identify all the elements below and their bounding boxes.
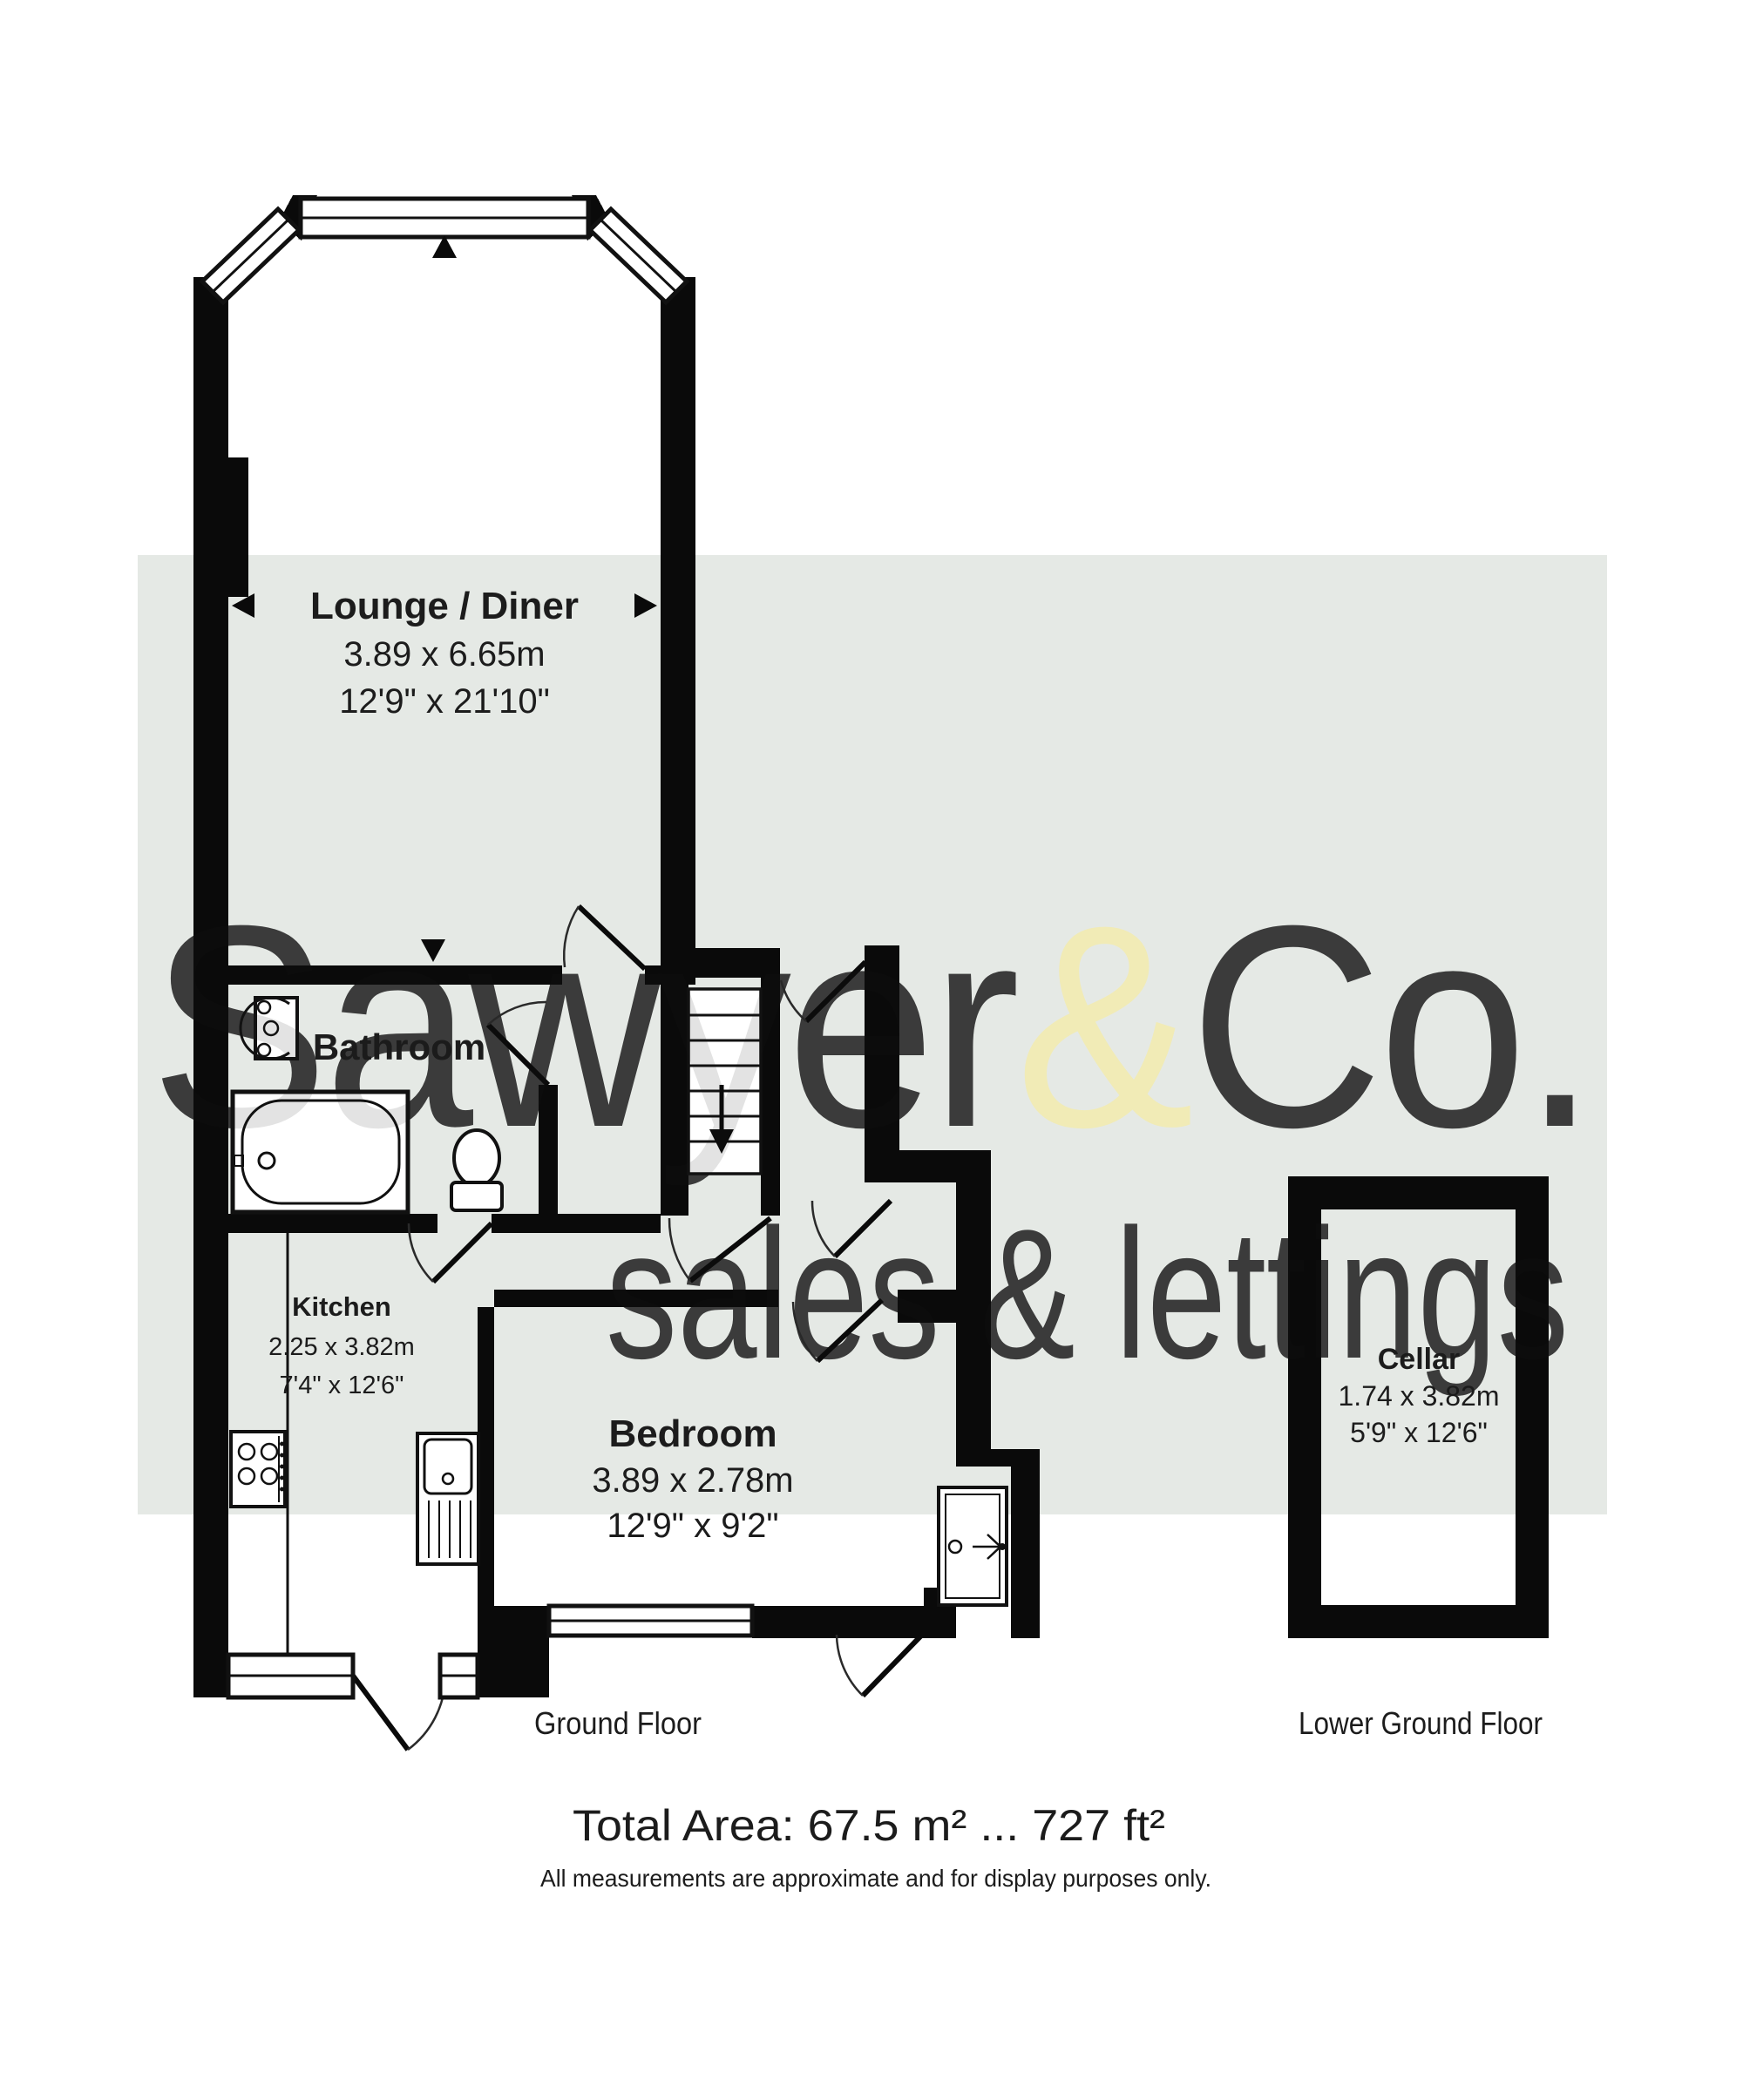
vestibule-rear-door [837, 1633, 924, 1696]
room-dims-cellar-imperial: 5'9" x 12'6" [1350, 1417, 1488, 1448]
footer: Total Area: 67.5 m² ... 727 ft² All meas… [540, 1801, 1211, 1892]
room-dims-kitchen-imperial: 7'4" x 12'6" [280, 1372, 404, 1399]
wall-bathroom-bottom [228, 1214, 437, 1233]
chimney-breast [228, 457, 248, 597]
total-area-text: Total Area: 67.5 m² ... 727 ft² [573, 1801, 1165, 1850]
room-dims-bedroom-metric: 3.89 x 2.78m [592, 1461, 793, 1500]
ground-floor-label: Ground Floor [534, 1705, 702, 1741]
sink-icon [417, 1433, 478, 1564]
lower-ground-floor-label: Lower Ground Floor [1299, 1705, 1543, 1741]
lounge-diner-room: Lounge / Diner 3.89 x 6.65m 12'9" x 21'1… [310, 585, 579, 721]
room-label-kitchen: Kitchen [292, 1291, 391, 1322]
wall-right-low [1011, 1449, 1040, 1638]
wall-bedroom-bottom [752, 1606, 924, 1638]
floorplan-page: Sawyer&Co. sales & lettings [0, 0, 1743, 2100]
room-dims-lounge-metric: 3.89 x 6.65m [343, 635, 545, 674]
bedroom-window [549, 1606, 752, 1636]
room-label-lounge: Lounge / Diner [310, 585, 579, 627]
front-door-icon [939, 1487, 1007, 1605]
room-dims-bedroom-imperial: 12'9" x 9'2" [607, 1507, 778, 1545]
room-dims-kitchen-metric: 2.25 x 3.82m [268, 1333, 415, 1361]
room-label-bedroom: Bedroom [608, 1412, 777, 1455]
kitchen-window [228, 1655, 478, 1697]
room-dims-lounge-imperial: 12'9" x 21'10" [339, 682, 550, 721]
kitchen-rear-door [353, 1676, 445, 1750]
disclaimer-text: All measurements are approximate and for… [540, 1865, 1211, 1892]
hob-icon [231, 1432, 285, 1507]
wall-lounge-right [661, 277, 695, 965]
floor-labels: Ground Floor Lower Ground Floor [534, 1705, 1543, 1741]
